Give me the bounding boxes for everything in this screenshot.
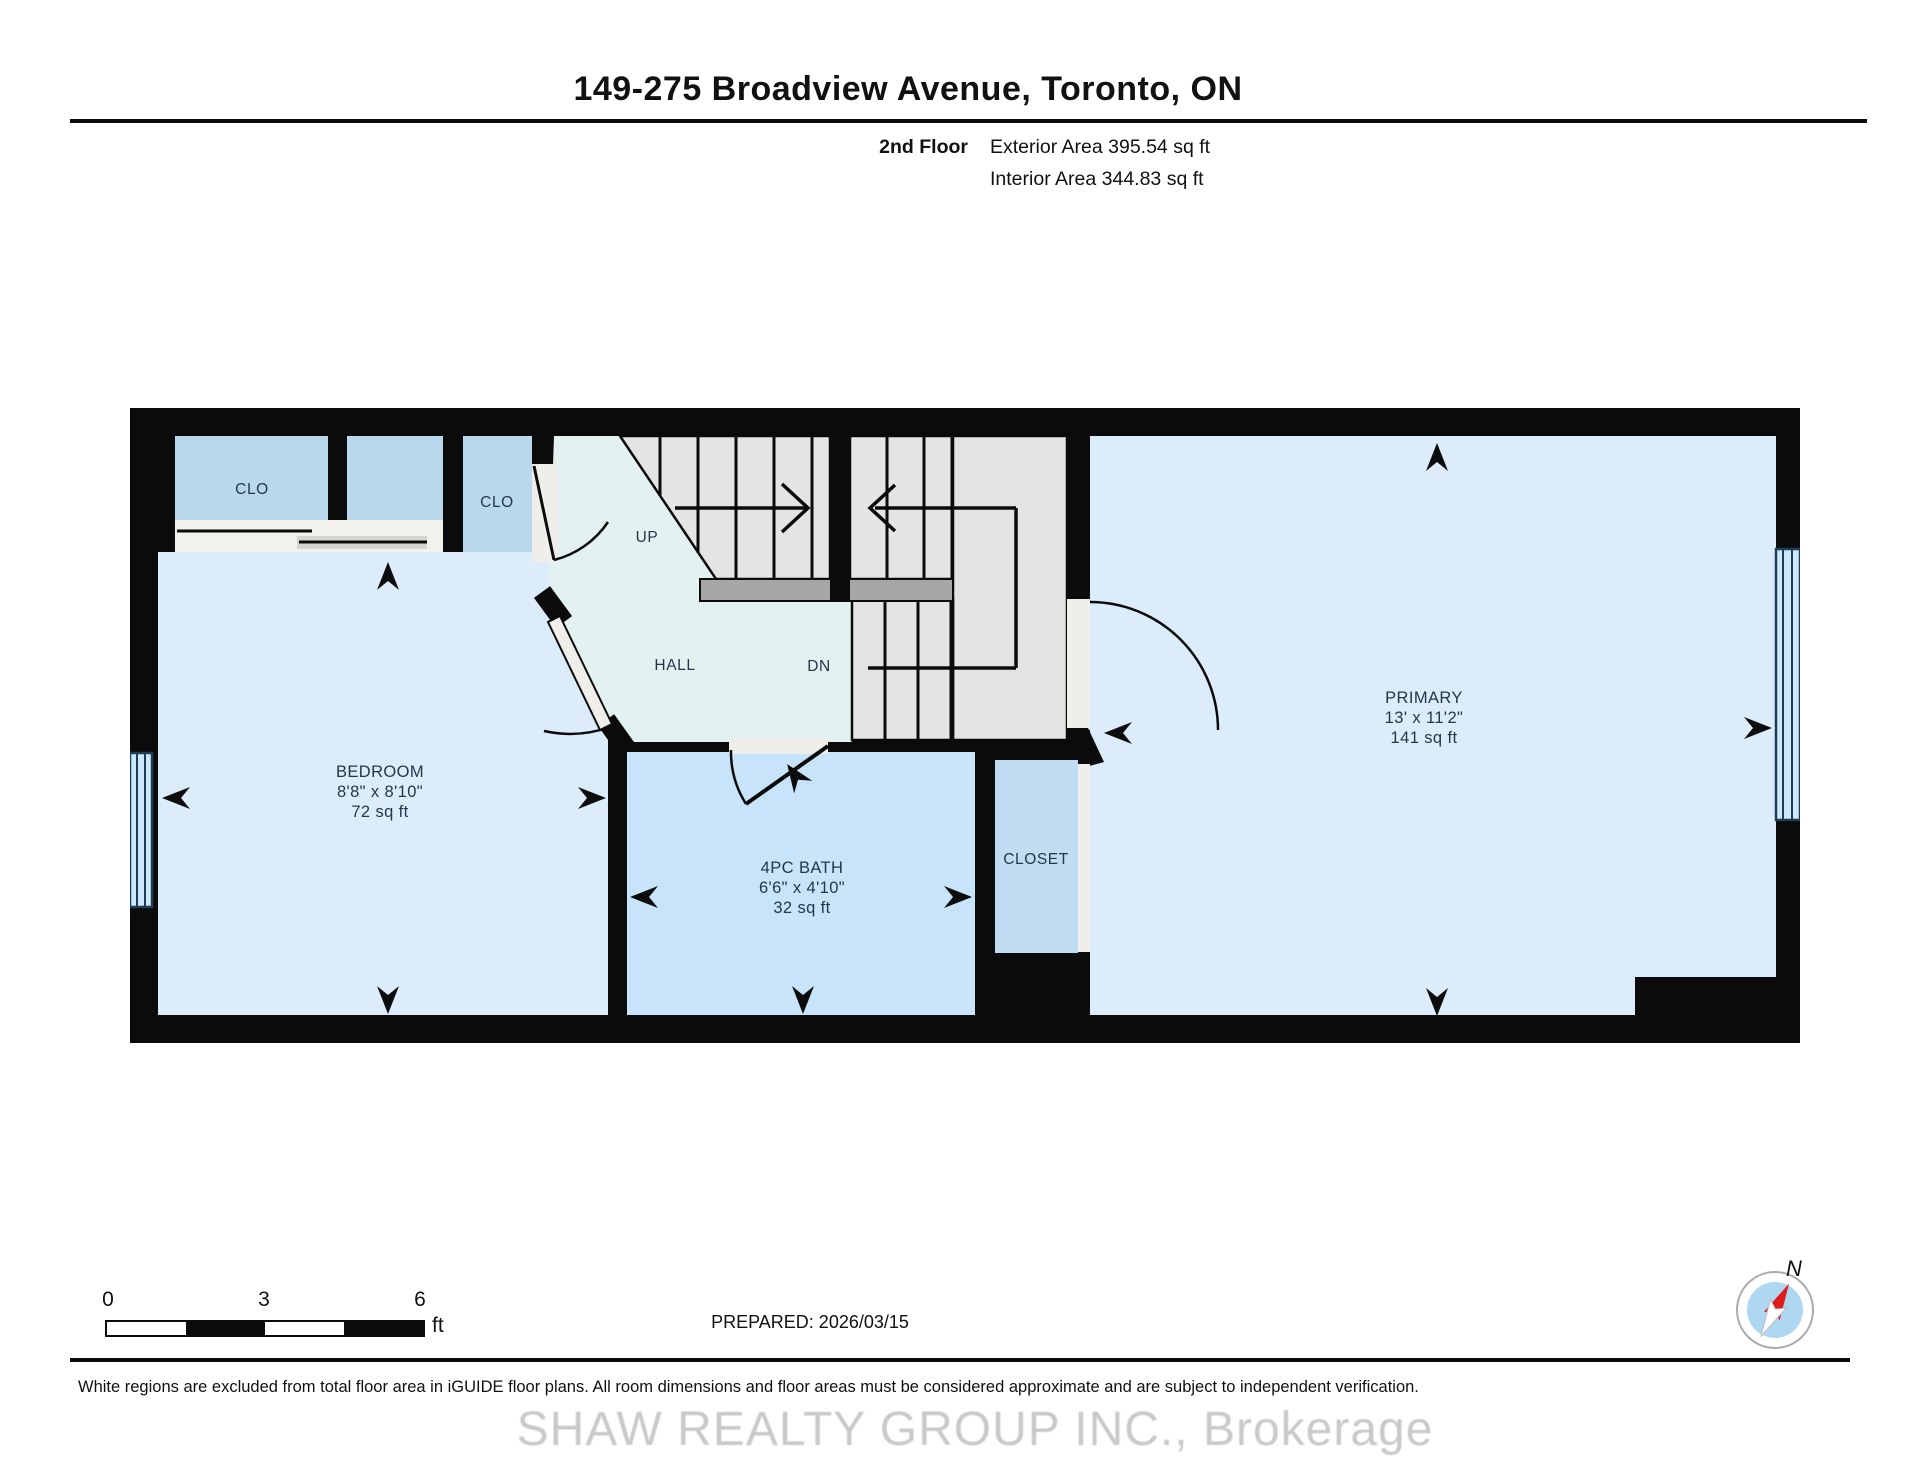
- window-left: [130, 753, 152, 907]
- scale-segment: [265, 1322, 344, 1335]
- stairs-up-label: UP: [636, 529, 659, 547]
- primary-label: PRIMARY 13' x 11'2" 141 sq ft: [1385, 688, 1464, 748]
- bedroom-dims: 8'8" x 8'10": [336, 782, 424, 802]
- brokerage-watermark: SHAW REALTY GROUP INC., Brokerage: [517, 1402, 1434, 1457]
- primary-area: 141 sq ft: [1385, 728, 1464, 748]
- scale-segment: [107, 1322, 186, 1335]
- compass: N: [1722, 1258, 1832, 1368]
- closet-left-label: CLO: [235, 481, 269, 499]
- scale-tick-3: 3: [244, 1288, 284, 1312]
- scale-unit: ft: [432, 1314, 444, 1338]
- disclaimer-text: White regions are excluded from total fl…: [78, 1378, 1419, 1397]
- arrow-bath-left: [630, 886, 658, 908]
- prepared-date: PREPARED: 2026/03/15: [711, 1312, 909, 1333]
- arrow-bedroom-right: [578, 787, 606, 809]
- footer-divider: [70, 1358, 1850, 1362]
- header-divider: [70, 119, 1867, 123]
- stairs-landing: [953, 436, 1067, 740]
- arrow-bath-bottom: [792, 986, 814, 1014]
- arrow-primary-bottom: [1426, 988, 1448, 1016]
- primary-door: [1066, 599, 1218, 768]
- closet-door-gap: [1078, 764, 1090, 952]
- stair-railing: [700, 579, 953, 601]
- floor-label: 2nd Floor: [700, 136, 968, 159]
- page-title: 149-275 Broadview Avenue, Toronto, ON: [0, 70, 1816, 109]
- bath-label: 4PC BATH 6'6" x 4'10" 32 sq ft: [759, 858, 845, 918]
- stair-divider-wall: [830, 436, 850, 601]
- floor-plan: CLO CLO UP HALL DN CLOSET BEDROOM 8'8" x…: [130, 408, 1800, 1043]
- primary-dims: 13' x 11'2": [1385, 708, 1464, 728]
- stairs-down-label: DN: [807, 658, 831, 676]
- arrow-bath-right: [944, 886, 972, 908]
- stair-railing-post: [830, 579, 850, 601]
- arrow-primary-door: [1104, 722, 1132, 744]
- scale-tick-6: 6: [400, 1288, 440, 1312]
- window-right: [1776, 549, 1800, 820]
- arrow-bedroom-left: [162, 787, 190, 809]
- closet-hall-label: CLO: [480, 494, 514, 512]
- bedroom-label: BEDROOM 8'8" x 8'10" 72 sq ft: [336, 762, 424, 822]
- bath-door: [729, 738, 828, 804]
- floorplan-overlay: [130, 408, 1800, 1043]
- floor-plan-page: { "header": { "title": "149-275 Broadvie…: [0, 0, 1920, 1484]
- compass-north-label: N: [1786, 1258, 1802, 1281]
- arrow-bedroom-top: [377, 562, 399, 590]
- hall-label: HALL: [654, 657, 695, 675]
- scale-segment: [186, 1322, 265, 1335]
- bedroom-name: BEDROOM: [336, 762, 424, 782]
- scale-tick-0: 0: [88, 1288, 128, 1312]
- bath-dims: 6'6" x 4'10": [759, 878, 845, 898]
- closet-label: CLOSET: [1003, 851, 1069, 869]
- scale-segment: [344, 1322, 423, 1335]
- bath-name: 4PC BATH: [759, 858, 845, 878]
- exterior-area: Exterior Area 395.54 sq ft: [990, 136, 1210, 159]
- arrow-primary-right: [1744, 717, 1772, 739]
- arrow-bedroom-bottom: [377, 986, 399, 1014]
- sliding-door: [175, 520, 443, 552]
- arrow-primary-top: [1426, 443, 1448, 471]
- bath-area: 32 sq ft: [759, 898, 845, 918]
- scale-bar: [105, 1320, 425, 1337]
- bedroom-area: 72 sq ft: [336, 802, 424, 822]
- interior-area: Interior Area 344.83 sq ft: [990, 168, 1204, 191]
- primary-name: PRIMARY: [1385, 688, 1464, 708]
